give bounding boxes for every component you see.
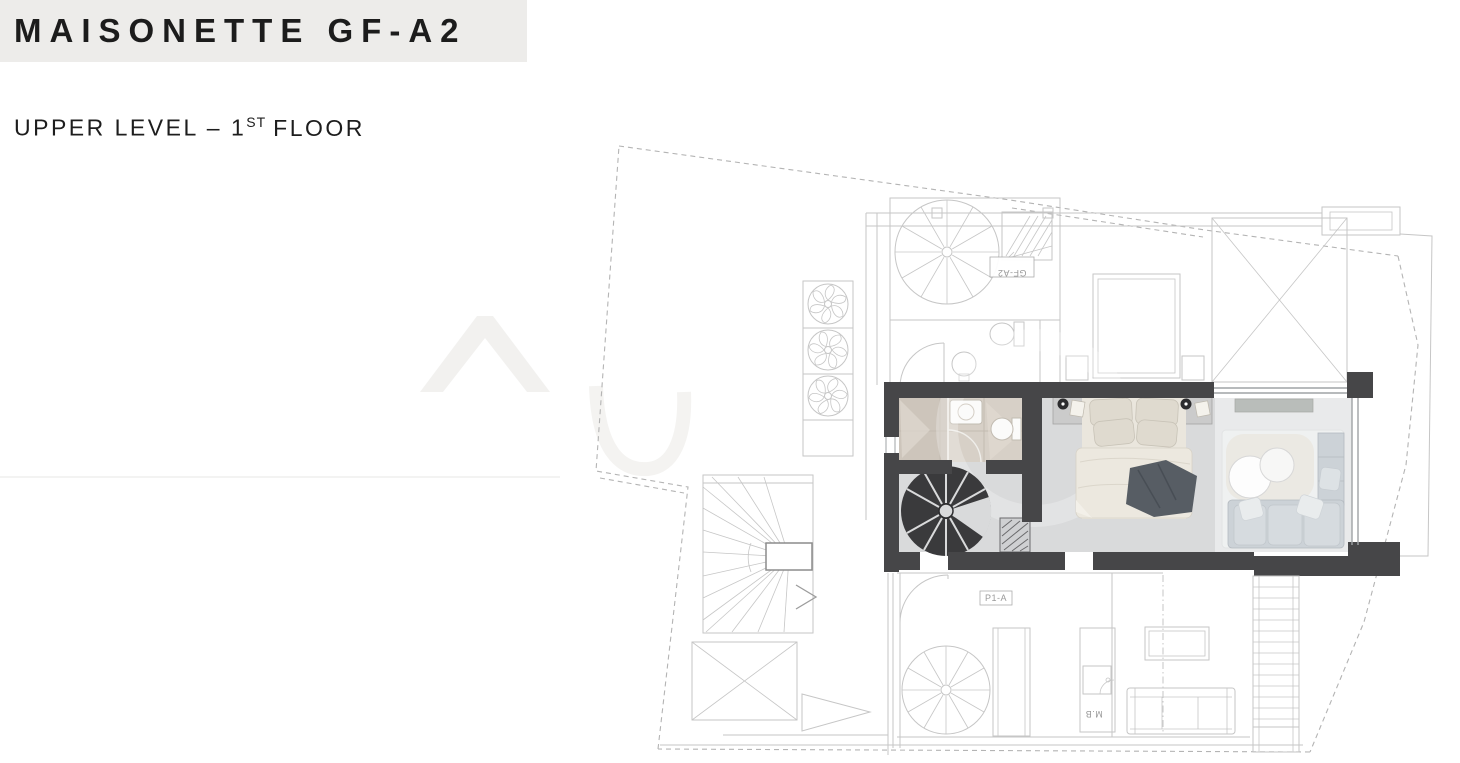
svg-text:GF-A2: GF-A2	[997, 268, 1026, 278]
throw-pillow	[1319, 467, 1342, 492]
plan-header: MAISONETTE GF-A2 UPPER LEVEL – 1STFLOOR	[0, 0, 527, 142]
terrace-hatch-box	[692, 642, 797, 720]
wall-bottom-b	[948, 552, 1065, 570]
book	[1070, 400, 1085, 417]
wall-pier-topright	[1347, 372, 1373, 398]
cabinet-ghost	[993, 628, 1030, 736]
skylight-void	[1212, 218, 1347, 382]
bed-group	[1053, 397, 1212, 519]
wall-bottom-a	[884, 552, 920, 570]
wall-bathroom-bottom-a	[898, 460, 952, 474]
wall-left	[884, 382, 899, 572]
wall-bathroom-bottom-b	[986, 460, 1022, 474]
spiral-stair-ghost-lower	[902, 646, 990, 734]
stair-hatch-up	[1002, 212, 1052, 260]
watermark-logo	[0, 316, 684, 477]
subtitle-suffix: FLOOR	[273, 115, 365, 141]
ac-units	[803, 281, 853, 456]
fan-icon	[808, 330, 848, 370]
straight-stair-down	[1253, 576, 1299, 752]
console	[1235, 399, 1313, 412]
parapet-window-box	[1322, 207, 1400, 235]
triangle-marker	[802, 694, 870, 731]
wall-bathroom-right	[1022, 398, 1042, 522]
unit-label-lower: P1-A	[980, 591, 1012, 605]
page-subtitle: UPPER LEVEL – 1STFLOOR	[14, 114, 527, 142]
toilet-icon	[991, 418, 1021, 440]
svg-text:P1-A: P1-A	[985, 593, 1007, 603]
table-ghost	[1145, 627, 1209, 660]
fan-icon	[808, 284, 848, 324]
book	[1195, 401, 1210, 417]
wall-top	[884, 382, 1214, 398]
wall-pier-bottomright	[1348, 542, 1400, 576]
sofa-ghost	[1127, 688, 1235, 734]
subtitle-text: UPPER LEVEL – 1	[14, 115, 246, 141]
door-swing	[900, 575, 948, 623]
neighbor-spiral-stair	[890, 198, 1060, 320]
subtitle-superscript: ST	[246, 114, 266, 130]
unit-label-neighbor: GF-A2	[990, 257, 1034, 278]
kitchen-label: M.B	[1085, 709, 1103, 719]
floor-grille	[1000, 518, 1030, 552]
facade-outline-right	[1400, 234, 1432, 556]
round-table-small	[1260, 448, 1294, 482]
lower-level-ghost	[893, 573, 1299, 752]
fan-icon	[808, 376, 848, 416]
page-title: MAISONETTE GF-A2	[14, 12, 467, 50]
wall-bottom-c	[1093, 552, 1254, 570]
title-band: MAISONETTE GF-A2	[0, 0, 527, 62]
svg-text:M.B: M.B	[1085, 709, 1103, 719]
